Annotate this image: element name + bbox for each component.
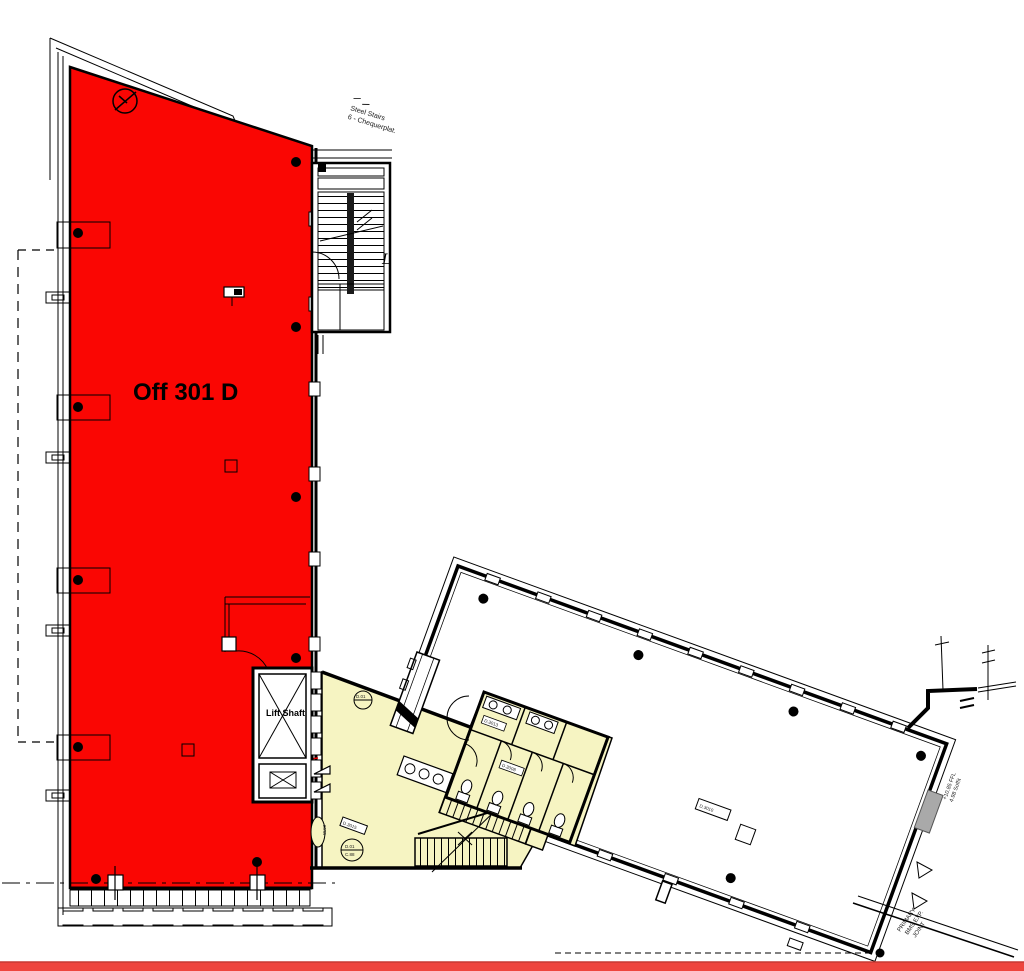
- south-outline-band: [58, 908, 332, 926]
- lift-label: Lift Shaft: [266, 708, 305, 718]
- svg-text:C.88: C.88: [345, 852, 355, 857]
- svg-text:D.01: D.01: [356, 694, 366, 699]
- floor-plan-canvas: D.3010 +10.85 FFL 4.98 Soffit PRIMARY BM…: [0, 0, 1024, 971]
- equals-mark: [960, 698, 974, 701]
- vent-tick: [935, 642, 949, 645]
- flag-marker: [917, 862, 932, 878]
- level-note: +10.85 FFL 4.98 Soffit: [942, 772, 964, 803]
- corner-dot: [876, 949, 885, 958]
- corner-tag: [787, 938, 803, 950]
- stair-corner-block: [318, 164, 326, 172]
- lift-shaft: Lift Shaft: [253, 668, 330, 802]
- lift-shaft-walls: [253, 668, 312, 802]
- flag-marker: [912, 893, 927, 909]
- south-window-band: [70, 890, 310, 906]
- room-label: Off 301 D: [133, 379, 238, 406]
- top-stairwell: Steel Stairs 6 - Chequerplat. L: [312, 97, 402, 354]
- equals-mark: [960, 705, 974, 708]
- service-duct: [908, 689, 977, 728]
- svg-text:D.01: D.01: [345, 844, 355, 849]
- letter-mark: L: [381, 252, 391, 268]
- datum-circle: D.01 C.88: [341, 839, 363, 861]
- bottom-bar: [0, 962, 1024, 971]
- bottom-bar-fill: [0, 962, 1024, 971]
- stairs-note: Steel Stairs 6 - Chequerplat.: [347, 97, 402, 136]
- door-marker-top: D.01: [354, 691, 372, 709]
- svg-text:W.03: W.03: [322, 824, 327, 835]
- stair-stringer: [347, 193, 354, 294]
